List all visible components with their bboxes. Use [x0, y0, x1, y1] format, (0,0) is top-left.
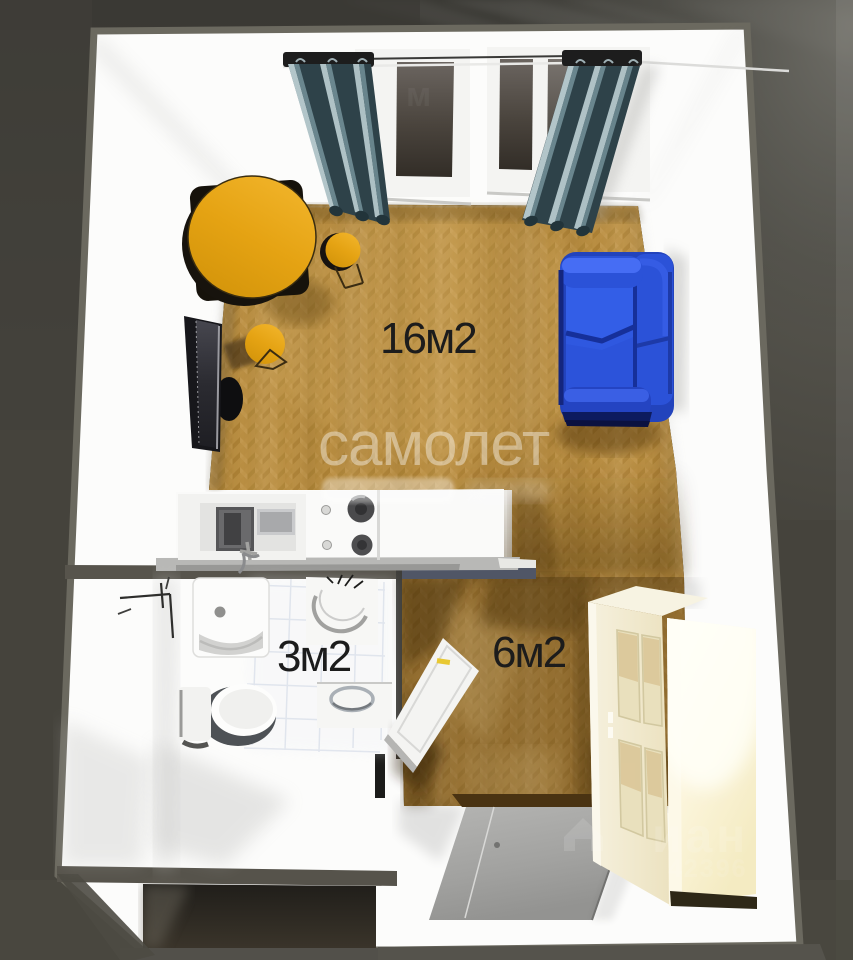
- svg-text:16м2: 16м2: [380, 314, 476, 363]
- svg-text:3м2: 3м2: [277, 632, 351, 681]
- svg-text:самолет: самолет: [318, 410, 550, 479]
- svg-text:6м2: 6м2: [492, 628, 566, 677]
- svg-text:42396: 42396: [668, 855, 748, 883]
- svg-text:м: м: [406, 76, 431, 114]
